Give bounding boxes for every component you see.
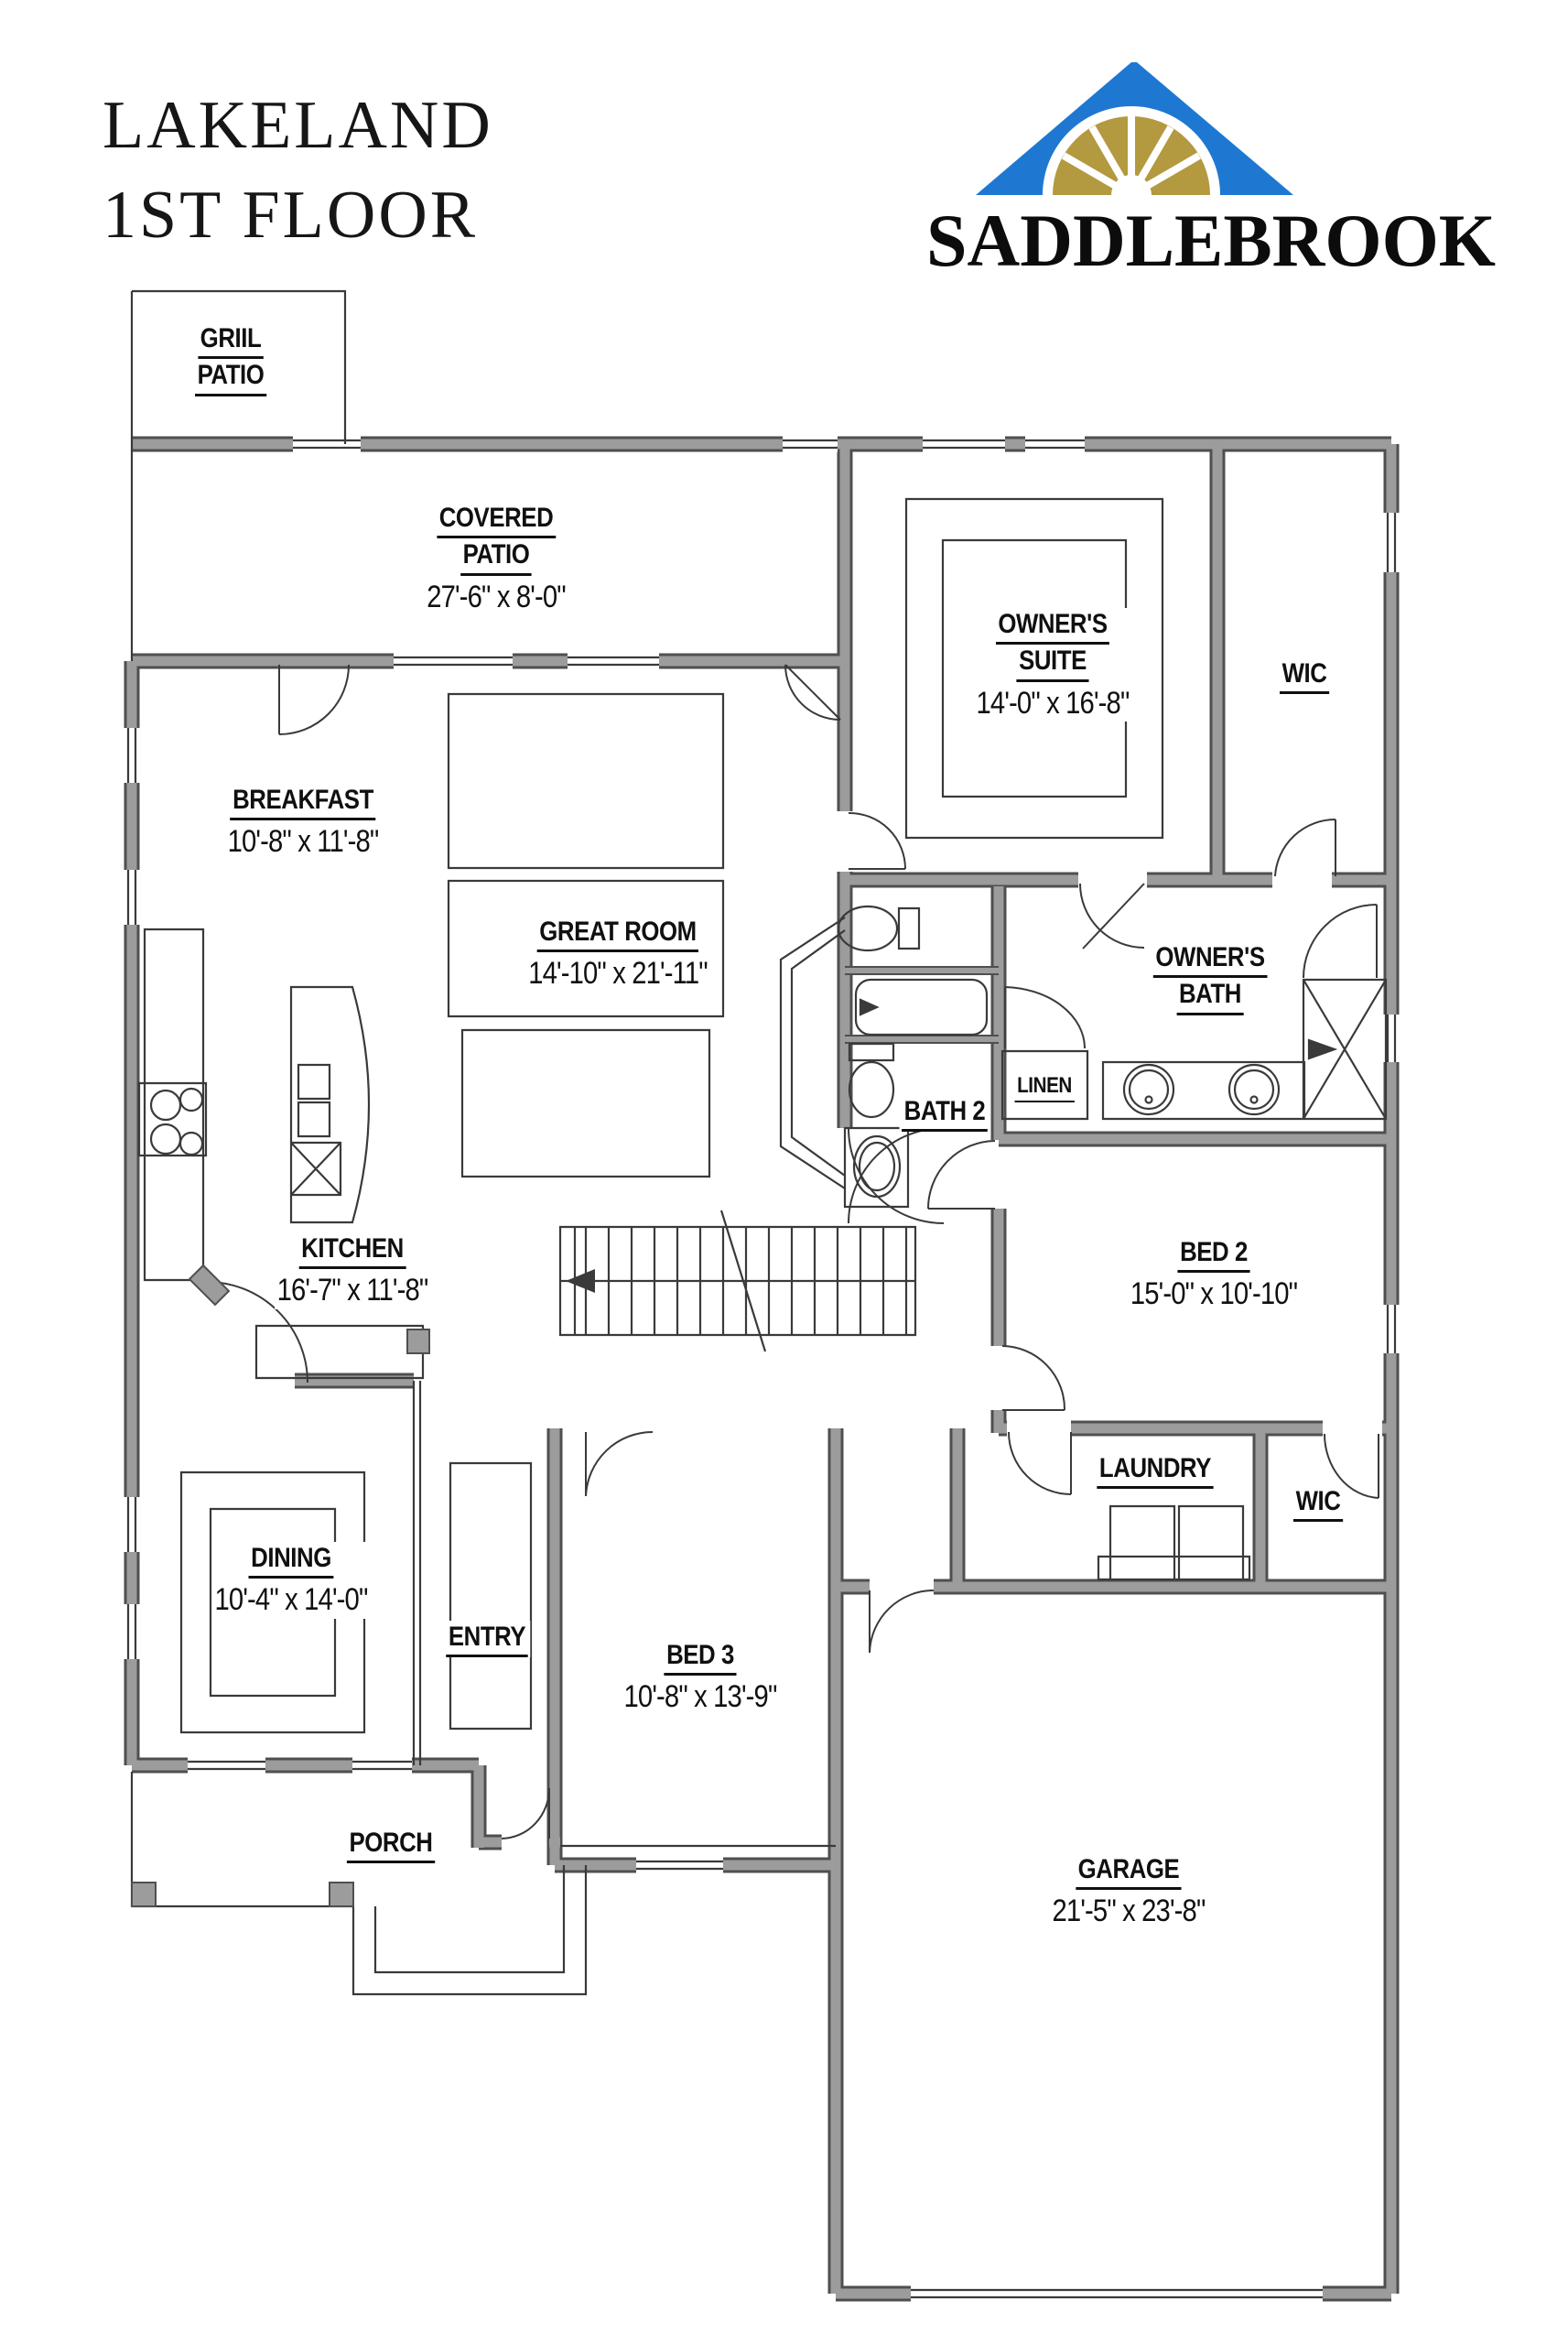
door-linen (1005, 987, 1085, 1048)
counter-end (407, 1329, 429, 1353)
label-linen: LINEN (1012, 1073, 1076, 1102)
burner (180, 1089, 202, 1111)
porch-post (330, 1883, 353, 1906)
door-suite-bath (1080, 884, 1144, 949)
label-garage: GARAGE 21'-5" x 23'-8" (1050, 1853, 1207, 1930)
tub-faucet (860, 1000, 877, 1015)
sink-vanity-left (1124, 1065, 1173, 1114)
label-covered-patio: COVERED PATIO 27'-6" x 8'-0" (425, 502, 568, 615)
toilet-bath2 (849, 1062, 893, 1117)
burner (151, 1124, 180, 1154)
sink-vanity-right (1229, 1065, 1279, 1114)
shower-head (1309, 1040, 1335, 1058)
door-patio-breakfast (279, 665, 349, 734)
stairs-arrow (566, 1269, 595, 1293)
label-bed3: BED 3 10'-8" x 13'-9" (622, 1639, 779, 1716)
door-wic-upper (1275, 819, 1336, 876)
label-owners-bath: OWNER'S BATH (1151, 941, 1270, 1015)
label-owners-suite: OWNER'S SUITE 14'-0" x 16'-8" (974, 608, 1131, 722)
porch-post (132, 1883, 156, 1906)
label-laundry: LAUNDRY (1095, 1452, 1216, 1489)
label-grill-patio: GRIIL PATIO (192, 322, 268, 396)
sink-bath2 (854, 1136, 900, 1197)
label-bed2: BED 2 15'-0" x 10'-10" (1128, 1236, 1300, 1313)
door-bed3 (586, 1432, 653, 1496)
door-garage (870, 1590, 934, 1653)
windows (124, 436, 1400, 2302)
door-shower (1303, 905, 1377, 978)
door-owners-suite (849, 813, 905, 869)
door-bath2 (928, 1141, 995, 1209)
burner (180, 1133, 202, 1155)
label-great-room: GREAT ROOM 14'-10" x 21'-11" (526, 916, 710, 993)
label-wic-upper: WIC (1277, 657, 1331, 694)
label-wic-lower: WIC (1291, 1485, 1345, 1522)
label-entry: ENTRY (444, 1621, 531, 1657)
door-patio-greatroom (785, 665, 840, 720)
door-laundry (1009, 1432, 1071, 1494)
label-porch: PORCH (344, 1827, 437, 1863)
label-dining: DINING 10'-4" x 14'-0" (212, 1542, 370, 1619)
floor-plan-page: LAKELAND 1ST FLOOR SADDLEBROOK (0, 0, 1568, 2344)
label-bath2: BATH 2 (899, 1095, 989, 1132)
label-breakfast: BREAKFAST 10'-8" x 11'-8" (225, 784, 381, 861)
label-kitchen: KITCHEN 16'-7" x 11'-8" (275, 1232, 430, 1309)
kitchen-door-stub (189, 1265, 229, 1305)
door-front (502, 1788, 549, 1839)
burner (151, 1091, 180, 1120)
door-bed2 (1002, 1346, 1065, 1410)
